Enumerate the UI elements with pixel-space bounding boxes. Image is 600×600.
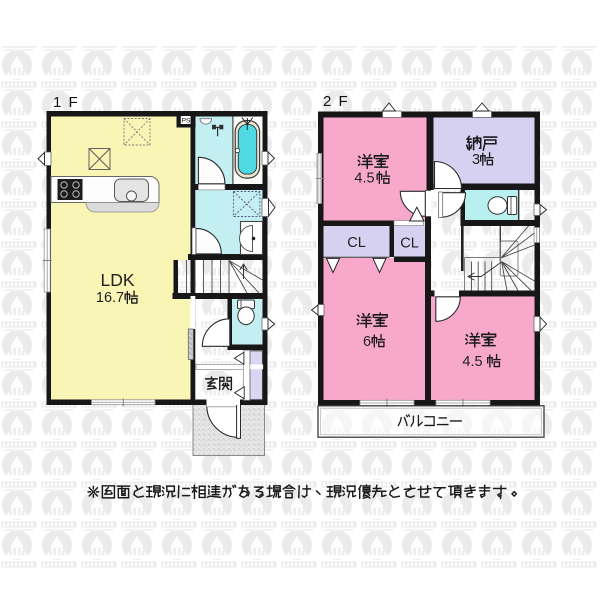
svg-text:4.5: 4.5 [462, 354, 482, 370]
svg-text:16.7: 16.7 [96, 290, 124, 306]
svg-text:CL: CL [347, 235, 366, 251]
svg-text:PS: PS [182, 118, 191, 125]
svg-text:2 F: 2 F [323, 93, 349, 110]
svg-text:1 F: 1 F [53, 94, 79, 111]
svg-text:CL: CL [400, 236, 419, 252]
svg-text:4.5: 4.5 [354, 171, 374, 187]
svg-text:6: 6 [363, 334, 371, 350]
svg-text:LDK: LDK [100, 270, 134, 290]
svg-text:3: 3 [472, 152, 480, 168]
